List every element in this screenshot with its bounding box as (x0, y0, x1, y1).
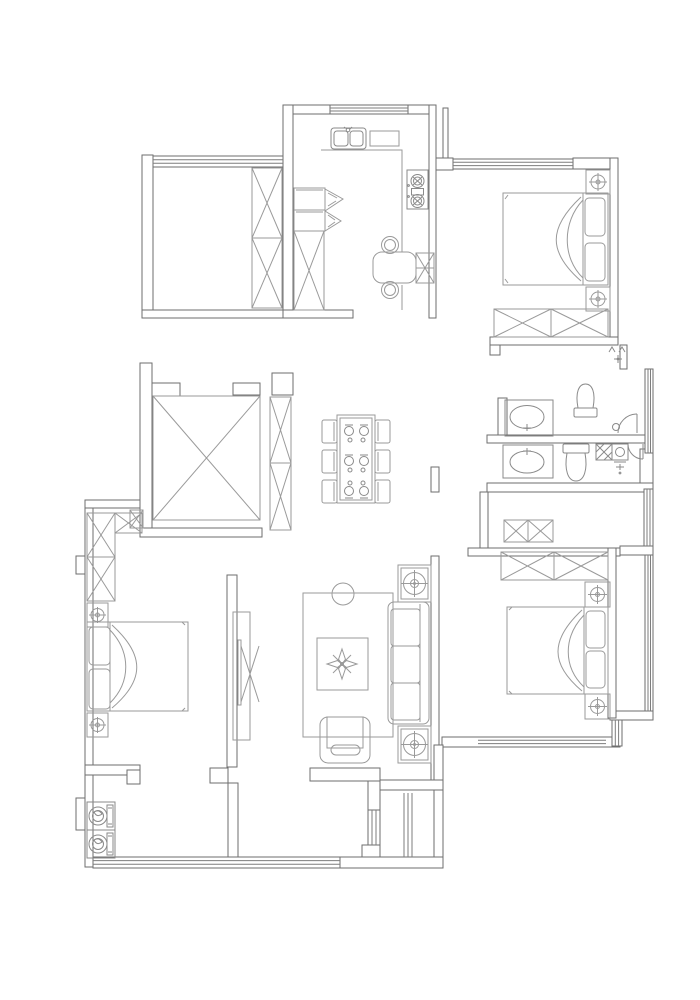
wall-segment (85, 775, 93, 867)
wall-segment (368, 781, 380, 810)
bedroom-southwest (87, 513, 259, 740)
wall-segment (431, 467, 439, 492)
wall-segment (210, 768, 228, 783)
wall-segment (283, 310, 353, 318)
door-swing (613, 414, 638, 433)
end-table-lamp (398, 726, 431, 763)
basin-cabinet (612, 444, 628, 474)
place-settings (345, 425, 369, 498)
vanity-basin (505, 400, 553, 436)
coffee-table-plant (317, 638, 368, 690)
wall-segment (142, 310, 293, 318)
wall-segment (429, 105, 436, 318)
vent-line-triplet (404, 793, 412, 857)
breakfast-table (373, 237, 416, 299)
tall-shelving (270, 397, 291, 530)
wall-segment (152, 383, 180, 396)
wall-segment (85, 500, 140, 508)
dining-table (337, 415, 375, 503)
wall-segment (610, 158, 618, 345)
wall-segment (480, 492, 488, 556)
wall-segment (490, 345, 500, 355)
refrigerator-cabinet (294, 188, 343, 231)
wall-segment (140, 363, 152, 530)
wall-segment (487, 483, 653, 492)
small-cabinet (504, 520, 553, 542)
dining-set (322, 415, 390, 503)
bathroom-upper (505, 384, 637, 436)
wall-segment (272, 373, 293, 395)
sofa (388, 602, 429, 724)
wall-segment (340, 857, 443, 868)
kitchen-sink (331, 127, 366, 149)
wardrobe (494, 309, 608, 337)
wall-segment (76, 798, 85, 830)
bed (507, 607, 608, 694)
gas-stove (407, 170, 428, 209)
window-band (453, 159, 573, 169)
dining-chairs (322, 420, 390, 503)
window-band (644, 489, 653, 546)
wall-segment (142, 155, 153, 318)
crossed-void (153, 396, 260, 520)
window-band (368, 810, 380, 845)
wall-segment (233, 383, 260, 395)
bed (503, 193, 608, 285)
floor-plan-page (0, 0, 700, 1000)
kitchen-tall-cabinet (294, 231, 324, 310)
wall-segment (442, 737, 620, 747)
floor-plan-canvas (0, 0, 700, 1000)
shower-drain-hatch (596, 444, 612, 460)
wall-segment (127, 770, 140, 784)
nightstand-lamp (585, 694, 610, 719)
window-band (93, 857, 340, 868)
kitchen (294, 127, 434, 310)
wall-segment (620, 546, 653, 555)
wall-segment (228, 783, 238, 858)
toilet (574, 384, 597, 417)
wall-segment (490, 337, 618, 345)
window-band (645, 369, 653, 453)
wall-segment (436, 158, 453, 170)
center-shaft (130, 396, 291, 530)
bedroom-northeast (494, 170, 610, 337)
balcony-nw-wardrobe (252, 168, 282, 308)
bathroom-lower (503, 444, 643, 481)
window-band (612, 720, 622, 746)
end-table-lamp (398, 565, 431, 602)
wall-segment (76, 556, 85, 574)
window-band (645, 555, 653, 711)
wall-segment (362, 845, 380, 857)
wall-segment (434, 745, 443, 857)
wall-segment (380, 780, 443, 790)
armchair (320, 717, 370, 763)
toilet (563, 444, 589, 481)
living-room (303, 565, 431, 763)
nightstand-lamp (586, 170, 610, 194)
wall-segment (443, 108, 448, 163)
kitchen-side-cabinet (416, 253, 434, 283)
wall-segment (140, 528, 262, 537)
round-side-table (332, 583, 354, 605)
wall-segment (608, 548, 616, 718)
wall-segment (283, 105, 293, 318)
bed (87, 622, 188, 711)
window-band (153, 156, 283, 167)
wardrobe-l-shaped (87, 513, 142, 601)
window-band (330, 105, 408, 114)
laundry-balcony (87, 802, 115, 858)
wall-segment (227, 575, 237, 767)
vanity-basin (503, 445, 553, 478)
nightstand-lamp (586, 287, 610, 311)
nightstand-lamp (585, 582, 610, 607)
wall-segment (310, 768, 380, 781)
